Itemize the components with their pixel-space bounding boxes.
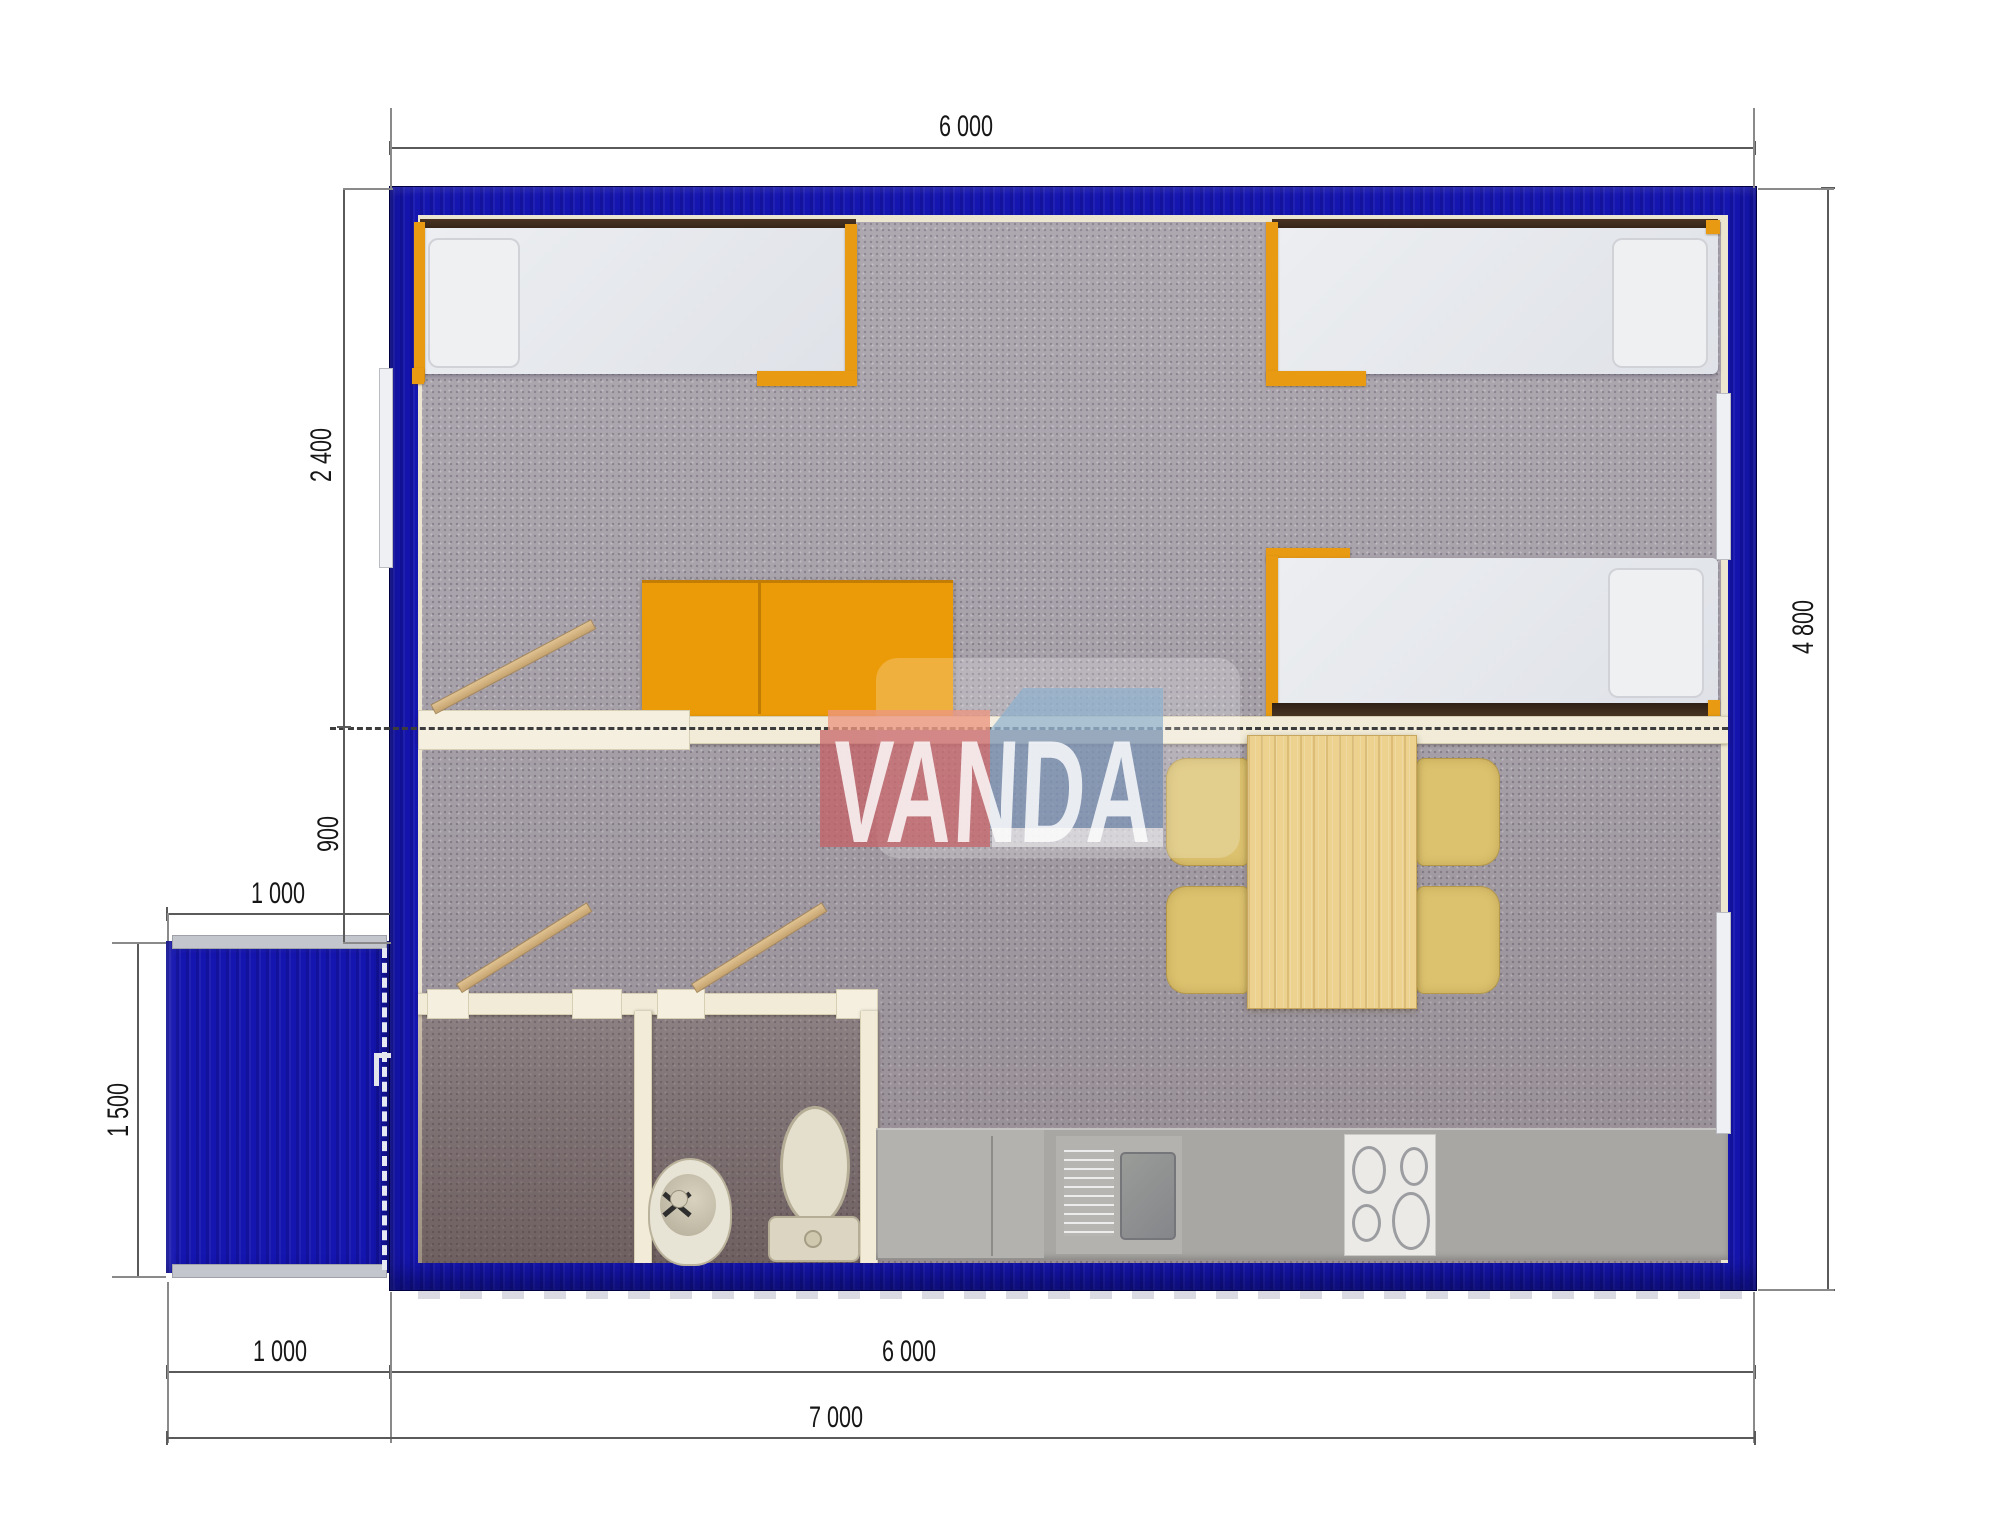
- dim-line-total: [166, 1437, 1756, 1439]
- window-right-bedroom: [1716, 393, 1731, 560]
- dim-extension: [1758, 1289, 1834, 1291]
- entrance-door-dashed: [382, 948, 387, 1270]
- entrance-porch: [166, 941, 392, 1273]
- door-casing: [572, 989, 622, 1019]
- dim-extension: [112, 942, 166, 944]
- dining-chair: [1166, 886, 1250, 994]
- wardrobe-door-seam: [758, 582, 761, 714]
- dim-extension: [112, 1276, 166, 1278]
- dim-tick: [166, 1431, 168, 1445]
- foundation-dashes: [418, 1291, 1756, 1299]
- faucet-knob: [670, 1190, 688, 1208]
- burner-icon: [1392, 1192, 1430, 1250]
- dim-extension: [343, 942, 391, 944]
- porch-bottom-sill: [172, 1264, 387, 1278]
- window-left-wall: [379, 368, 393, 568]
- burner-icon: [1352, 1146, 1386, 1194]
- dim-extension: [1753, 1292, 1755, 1443]
- bed-frame-corner: [1708, 700, 1720, 716]
- door-casing: [657, 989, 705, 1019]
- dim-line-porch-top: [166, 913, 390, 915]
- bed-frame-left: [1266, 222, 1278, 380]
- toilet-flush-button: [804, 1230, 822, 1248]
- entrance-door-handle: [374, 1053, 391, 1086]
- dim-line-top: [390, 147, 1756, 149]
- dim-label-porch-width-top: 1 000: [251, 879, 305, 909]
- dining-table: [1247, 735, 1417, 1009]
- door-casing: [427, 989, 469, 1019]
- dim-line-porch-left: [137, 943, 139, 1277]
- bed-frame-foot: [757, 371, 857, 386]
- bed-frame-left: [414, 222, 425, 382]
- dim-label-hall-depth: 900: [314, 816, 344, 852]
- bed-frame-foot: [1266, 371, 1366, 386]
- dim-extension: [167, 913, 169, 941]
- dim-line-right: [1827, 188, 1829, 1290]
- floor-plan-canvas: VANDA 6 000 4 800 2 400 900 1 000 1 500 …: [0, 0, 2000, 1537]
- dining-chair: [1416, 886, 1500, 994]
- dim-extension: [390, 108, 392, 188]
- dim-tick: [337, 726, 351, 728]
- dim-label-top-width: 6 000: [939, 112, 993, 142]
- bed-pillow: [1612, 238, 1708, 368]
- bed-pillow: [428, 238, 520, 368]
- dim-label-porch-width-bottom: 1 000: [253, 1337, 307, 1367]
- dim-label-porch-depth: 1 500: [104, 1083, 134, 1137]
- dim-extension: [343, 188, 393, 190]
- bed-frame-left: [1266, 556, 1278, 716]
- bed-frame-right: [845, 224, 857, 380]
- window-right-living: [1716, 912, 1731, 1134]
- counter-seam: [991, 1136, 993, 1256]
- dim-extension: [167, 1282, 169, 1443]
- sink-drainer: [1064, 1150, 1114, 1236]
- dim-tick: [1754, 1431, 1756, 1445]
- dim-extension: [390, 1292, 392, 1443]
- bed-pillow: [1608, 568, 1704, 698]
- dim-line-bottom: [166, 1371, 1756, 1373]
- dim-extension: [1753, 108, 1755, 188]
- bed-frame-corner: [412, 368, 424, 384]
- washbasin-bowl: [660, 1174, 716, 1236]
- kitchen-cabinet-top: [878, 1130, 1044, 1258]
- bed-foot-shadow: [1272, 703, 1718, 716]
- watermark-brand-text: VANDA: [829, 708, 1158, 876]
- dim-extension: [1758, 188, 1834, 190]
- door-casing: [418, 710, 690, 750]
- toilet-lid: [780, 1106, 850, 1226]
- dining-chair: [1416, 758, 1500, 866]
- dim-label-bottom-width: 6 000: [882, 1337, 936, 1367]
- dim-label-total-depth: 4 800: [1789, 600, 1819, 654]
- sink-basin: [1120, 1152, 1176, 1240]
- burner-icon: [1352, 1204, 1381, 1242]
- dim-label-bedroom-depth: 2 400: [307, 428, 337, 482]
- dim-label-total-width: 7 000: [809, 1403, 863, 1433]
- burner-icon: [1400, 1147, 1428, 1186]
- bed-frame-corner: [1706, 220, 1720, 234]
